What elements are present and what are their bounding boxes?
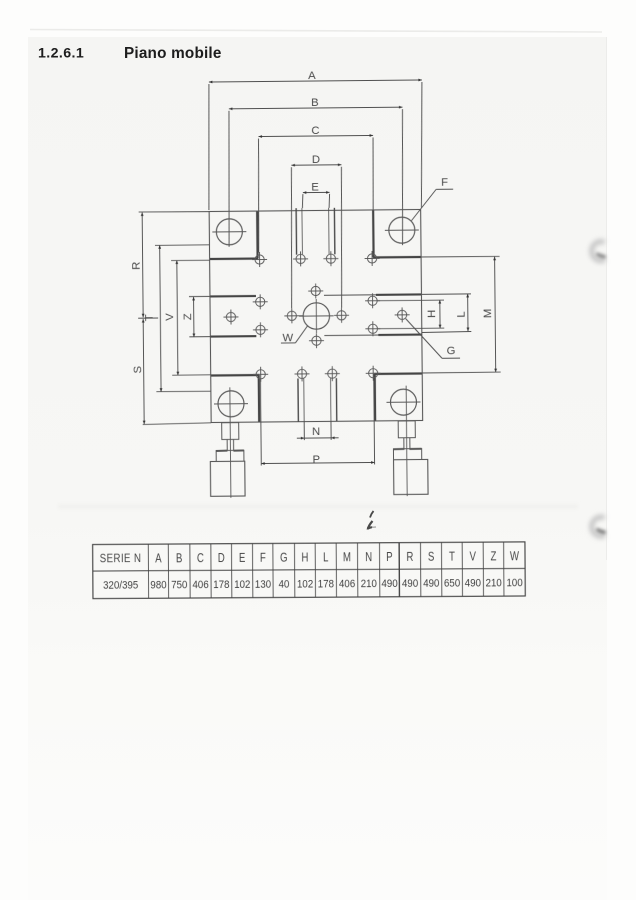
svg-text:T: T [449,550,455,564]
svg-text:F: F [441,177,448,189]
svg-text:R: R [130,262,142,270]
svg-text:B: B [311,97,319,109]
svg-text:C: C [197,552,204,566]
svg-text:F: F [260,552,266,566]
svg-text:490: 490 [423,578,439,590]
svg-text:100: 100 [506,578,522,590]
svg-text:N: N [312,426,320,438]
svg-text:SERIE N: SERIE N [100,552,142,566]
svg-text:210: 210 [486,578,502,590]
svg-text:40: 40 [279,579,290,591]
svg-text:178: 178 [213,580,229,592]
svg-text:L: L [455,311,467,317]
svg-text:E: E [239,552,246,566]
svg-text:130: 130 [255,579,271,591]
svg-text:750: 750 [171,580,187,592]
svg-text:490: 490 [402,578,418,590]
svg-text:320/395: 320/395 [103,580,138,592]
svg-text:H: H [426,310,438,318]
svg-text:E: E [311,181,319,193]
svg-text:Z: Z [491,550,497,564]
svg-text:G: G [280,551,288,565]
svg-text:A: A [155,552,162,566]
svg-text:T: T [144,314,156,321]
svg-text:D: D [312,154,320,166]
svg-text:490: 490 [381,579,397,591]
svg-text:D: D [218,552,225,566]
svg-text:B: B [176,552,183,566]
svg-text:P: P [313,454,321,466]
svg-text:P: P [386,551,393,565]
svg-text:102: 102 [234,579,250,591]
svg-text:A: A [308,70,316,82]
svg-text:S: S [428,551,435,565]
svg-text:406: 406 [339,579,355,591]
svg-text:V: V [164,313,176,321]
svg-text:980: 980 [150,580,166,592]
svg-text:650: 650 [444,578,460,590]
svg-text:V: V [469,550,476,564]
svg-text:M: M [482,309,494,319]
svg-text:210: 210 [361,579,377,591]
svg-text:W: W [510,550,519,564]
svg-text:S: S [132,365,144,373]
svg-text:Piano mobile: Piano mobile [124,45,222,62]
svg-text:406: 406 [192,580,208,592]
svg-text:M: M [343,551,351,565]
svg-text:R: R [406,551,413,565]
svg-text:G: G [447,345,456,357]
svg-text:N: N [365,551,372,565]
svg-text:L: L [323,551,328,565]
svg-text:C: C [311,125,319,137]
svg-text:178: 178 [318,579,334,591]
svg-text:Z: Z [182,313,194,320]
svg-text:490: 490 [465,578,481,590]
svg-text:H: H [301,551,308,565]
svg-text:102: 102 [297,579,313,591]
svg-text:1.2.6.1: 1.2.6.1 [38,46,84,62]
